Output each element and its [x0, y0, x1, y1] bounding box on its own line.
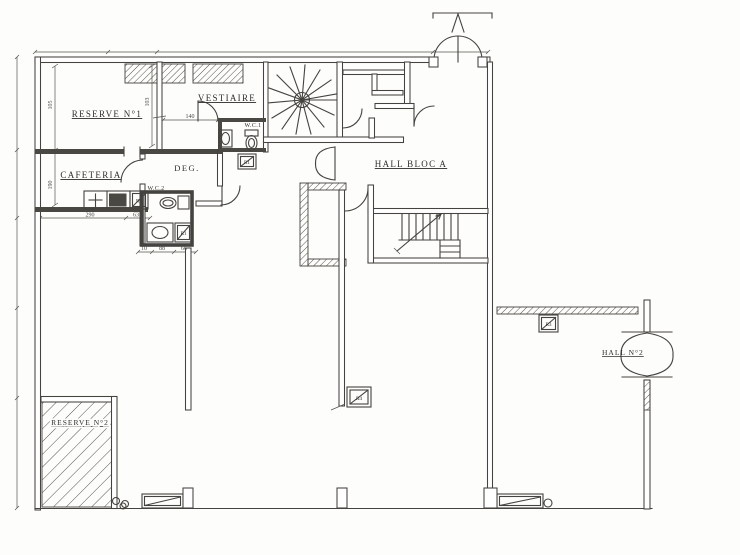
bottom-wall-fixtures — [122, 488, 553, 508]
room-label-vestiaire: VESTIAIRE — [198, 93, 256, 103]
room-label-wc1: W.C.1 — [244, 123, 261, 129]
cafeteria-counter: R2 — [84, 191, 148, 209]
radiator-label: R1 — [180, 231, 186, 237]
radiator-label: R1 — [244, 160, 250, 166]
radiator-icon-wc2: R1 — [175, 223, 192, 242]
scanned-floor-plan-page: R1 R2 R — [0, 0, 740, 555]
dim-text: 190 — [48, 181, 54, 190]
hatched-wall-segment — [497, 307, 638, 314]
wc1-block: R1 — [198, 101, 266, 169]
toilet-icon-wc2 — [160, 196, 189, 209]
room-label-degagement: DEG. — [174, 163, 200, 173]
radiator-label: R4 — [356, 396, 362, 402]
pillar — [337, 488, 347, 508]
radiator-icon-hall2: R3 — [539, 315, 558, 332]
counter-sink-icon — [89, 194, 102, 207]
radiator-icon-bottom-left — [122, 494, 184, 508]
entrance-double-door-icon — [429, 13, 492, 67]
room-label-hall-2: HALL N°2 — [602, 348, 644, 357]
dim-text: 103 — [145, 98, 151, 107]
hatched-wall-segment — [125, 64, 185, 83]
room-label-reserve-2: RESERVE N°2 — [51, 418, 109, 427]
room-label-cafeteria: CAFETERIA — [60, 170, 121, 180]
spiral-staircase-icon — [267, 65, 337, 134]
stair-direction-arrow — [397, 214, 441, 251]
door-arc-deg — [221, 186, 240, 205]
dim-text: 10 — [141, 246, 147, 252]
staircase-icon — [394, 214, 460, 258]
hall2-wing: R3 — [497, 300, 673, 509]
dim-text: 105 — [48, 101, 54, 110]
dim-text: 66 — [181, 246, 187, 252]
dim-text: 63 — [133, 213, 139, 219]
dim-text: 140 — [186, 114, 195, 120]
radiator-icon-bottom-right — [497, 494, 552, 508]
door-arc-stair-lobby — [343, 109, 362, 128]
door-arc-shaft — [345, 188, 368, 211]
reserve2-room — [41, 397, 126, 510]
door-arc-wc1 — [198, 101, 218, 121]
room-labels: RESERVE N°1 VESTIAIRE CAFETERIA DEG. W.C… — [51, 93, 644, 427]
radiator-icon-partition: R4 — [347, 387, 371, 407]
stove-icon — [109, 194, 127, 207]
pillar — [183, 488, 193, 508]
dim-text: 88 — [159, 246, 165, 252]
room-label-wc2: W.C.2 — [147, 186, 164, 192]
floor-plan: R1 R2 R — [0, 0, 740, 555]
toilet-icon-wc1 — [245, 130, 258, 151]
sink-icon-wc2 — [147, 223, 173, 242]
swing-door-icon — [315, 147, 335, 180]
dim-text: 290 — [86, 213, 95, 219]
hatched-wall-segment — [193, 64, 243, 83]
room-label-reserve-1: RESERVE N°1 — [72, 109, 142, 119]
room-label-hall-bloc-a: HALL BLOC A — [375, 159, 447, 169]
radiator-icon-wc1: R1 — [238, 154, 256, 169]
pillar — [484, 488, 497, 508]
radiator-label: R3 — [545, 322, 551, 328]
door-arc-cafeteria — [121, 160, 143, 182]
door-arc-vestibule — [414, 106, 434, 126]
